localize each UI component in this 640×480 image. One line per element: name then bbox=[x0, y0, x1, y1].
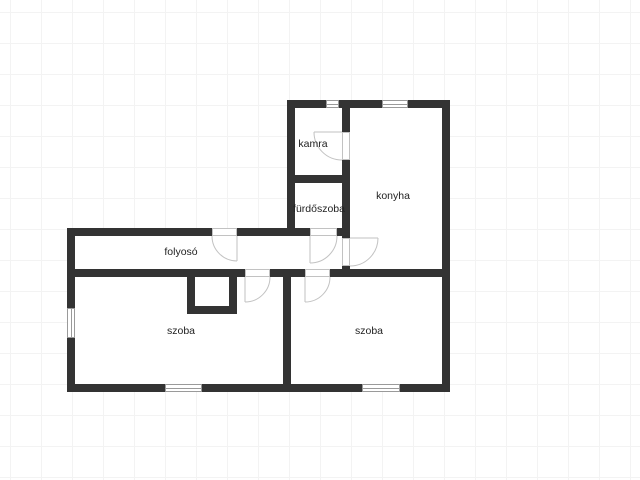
window-szoba-right-south-icon bbox=[362, 384, 400, 392]
window-szoba-left-west-icon bbox=[67, 308, 75, 338]
window-pane bbox=[71, 309, 72, 337]
window-konyha-north-icon bbox=[382, 100, 408, 108]
wall-szoba-divider bbox=[283, 277, 291, 392]
window-pane bbox=[363, 388, 399, 389]
door-konyha-opening bbox=[342, 238, 350, 266]
wall-niche-bottom bbox=[187, 306, 237, 314]
wall-folyoso-north bbox=[67, 228, 295, 236]
room-label-furdoszoba: fürdőszoba bbox=[293, 203, 345, 215]
floor-plan-canvas: kamra konyha fürdőszoba folyosó szoba sz… bbox=[0, 0, 640, 480]
room-label-szoba-left: szoba bbox=[167, 325, 195, 337]
window-szoba-left-south-icon bbox=[165, 384, 202, 392]
door-kamra-opening bbox=[342, 132, 350, 160]
window-pane bbox=[327, 104, 338, 105]
door-szoba-left-opening bbox=[245, 269, 270, 277]
room-label-szoba-right: szoba bbox=[355, 325, 383, 337]
door-furdoszoba-opening bbox=[310, 228, 337, 236]
door-entry-opening bbox=[212, 228, 237, 236]
wall-east bbox=[442, 100, 450, 392]
room-label-kamra: kamra bbox=[298, 138, 327, 150]
window-pane bbox=[166, 388, 201, 389]
wall-kamra-furdoszoba bbox=[287, 175, 350, 183]
door-szoba-right-opening bbox=[305, 269, 330, 277]
window-kamra-north-icon bbox=[326, 100, 339, 108]
wall-upper-west bbox=[287, 100, 295, 236]
room-label-konyha: konyha bbox=[376, 190, 410, 202]
wall-north bbox=[287, 100, 450, 108]
window-pane bbox=[383, 104, 407, 105]
room-label-folyoso: folyosó bbox=[164, 246, 197, 258]
